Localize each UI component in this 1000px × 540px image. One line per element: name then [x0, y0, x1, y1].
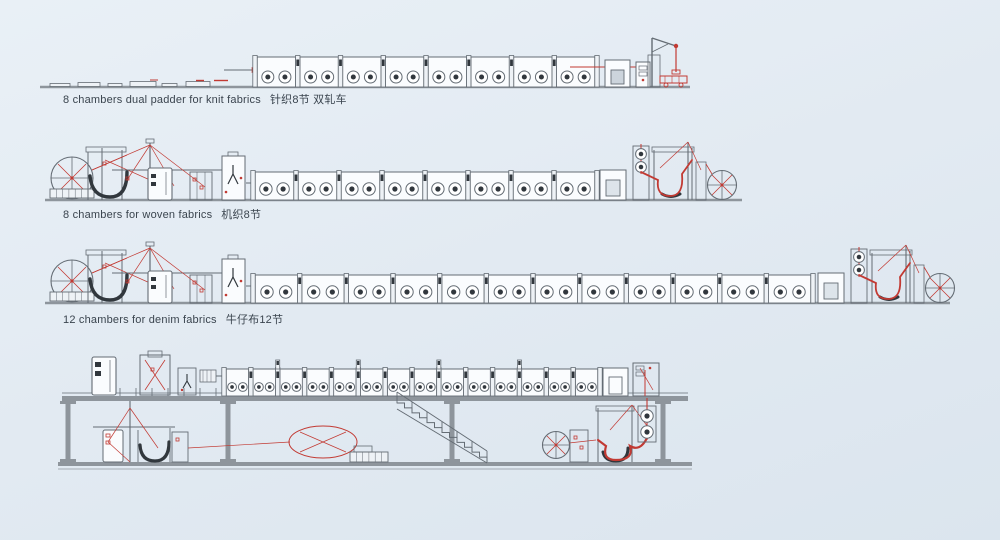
batch-winder — [924, 267, 955, 303]
knit-line-label-en: 8 chambers dual padder for knit fabrics — [63, 94, 261, 106]
denim-line-label-en: 12 chambers for denim fabrics — [63, 314, 217, 326]
feed-pipe — [200, 370, 223, 382]
inlet-padder — [222, 152, 245, 200]
deck-padder — [140, 351, 170, 395]
exit-cabin — [600, 170, 626, 200]
control-cabinet — [148, 168, 172, 200]
woven-line-label-cn: 机织8节 — [221, 209, 261, 221]
denim-line-diagram — [45, 242, 955, 303]
ground-winder-group — [543, 398, 657, 462]
platform-column — [655, 401, 671, 462]
entry-flat-equipment — [50, 80, 228, 87]
control-cabinet — [148, 271, 172, 303]
batch-winder — [543, 432, 570, 459]
ground-pallet — [350, 446, 388, 462]
knit-line-caption: 8 chambers dual padder for knit fabrics针… — [63, 91, 347, 107]
drying-chambers — [253, 56, 599, 88]
cloth-loop-ellipse — [289, 426, 357, 458]
cooling-cylinders — [638, 398, 656, 442]
deck-exit-cabin — [603, 368, 628, 396]
crane-tower — [648, 38, 680, 87]
elevated-line-diagram — [58, 351, 692, 469]
exit-j-box-scray — [859, 245, 924, 303]
machine-layout-canvas: 8 chambers dual padder for knit fabrics针… — [0, 0, 1000, 540]
exit-cabin — [605, 60, 630, 87]
inlet-padder — [222, 255, 245, 303]
woven-line-caption: 8 chambers for woven fabrics机织8节 — [63, 206, 261, 222]
woven-line-diagram — [45, 139, 742, 200]
deck-scray — [178, 368, 196, 395]
denim-line-label-cn: 牛仔布12节 — [226, 314, 283, 326]
platform-column — [60, 401, 76, 462]
knit-line-diagram — [40, 38, 690, 87]
diagram-svg — [0, 0, 1000, 540]
feed-arrow — [224, 68, 257, 73]
drying-chambers — [251, 171, 599, 201]
drying-chambers — [222, 360, 602, 396]
cloth-pallet — [50, 189, 94, 198]
batch-trolley — [660, 76, 687, 87]
ground-unwind-group — [93, 401, 290, 462]
woven-line-label-en: 8 chambers for woven fabrics — [63, 209, 212, 221]
knit-line-label-cn: 针织8节 双轧车 — [270, 94, 347, 106]
platform-column — [220, 401, 236, 462]
exit-cabin — [818, 273, 844, 303]
exit-j-box-scray — [641, 142, 706, 200]
drying-chambers — [251, 274, 815, 304]
batch-winder — [706, 164, 737, 200]
cloth-pallet — [50, 292, 94, 301]
denim-line-caption: 12 chambers for denim fabrics牛仔布12节 — [63, 311, 283, 327]
deck-end-unit — [633, 363, 659, 396]
staircase — [397, 392, 487, 463]
deck-control-cabinet — [92, 357, 116, 395]
